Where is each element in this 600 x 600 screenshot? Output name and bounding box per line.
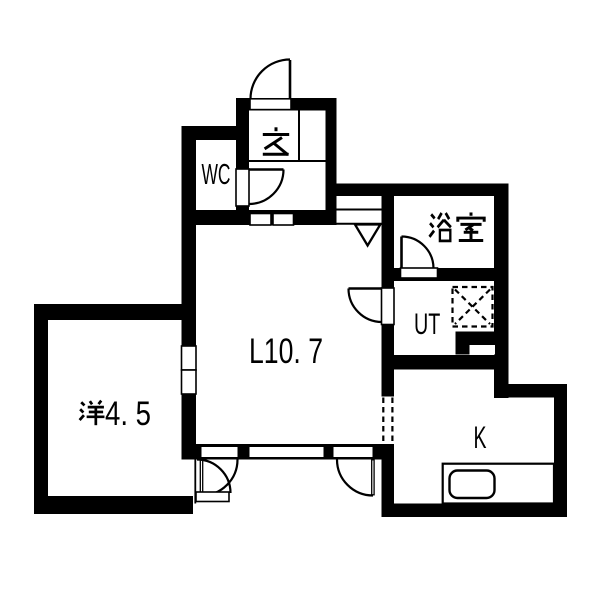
svg-text:L10. 7: L10. 7 xyxy=(249,331,323,371)
svg-text:UT: UT xyxy=(414,308,440,341)
svg-text:K: K xyxy=(474,419,487,455)
svg-text:WC: WC xyxy=(202,159,231,191)
svg-text:4. 5: 4. 5 xyxy=(105,395,151,433)
